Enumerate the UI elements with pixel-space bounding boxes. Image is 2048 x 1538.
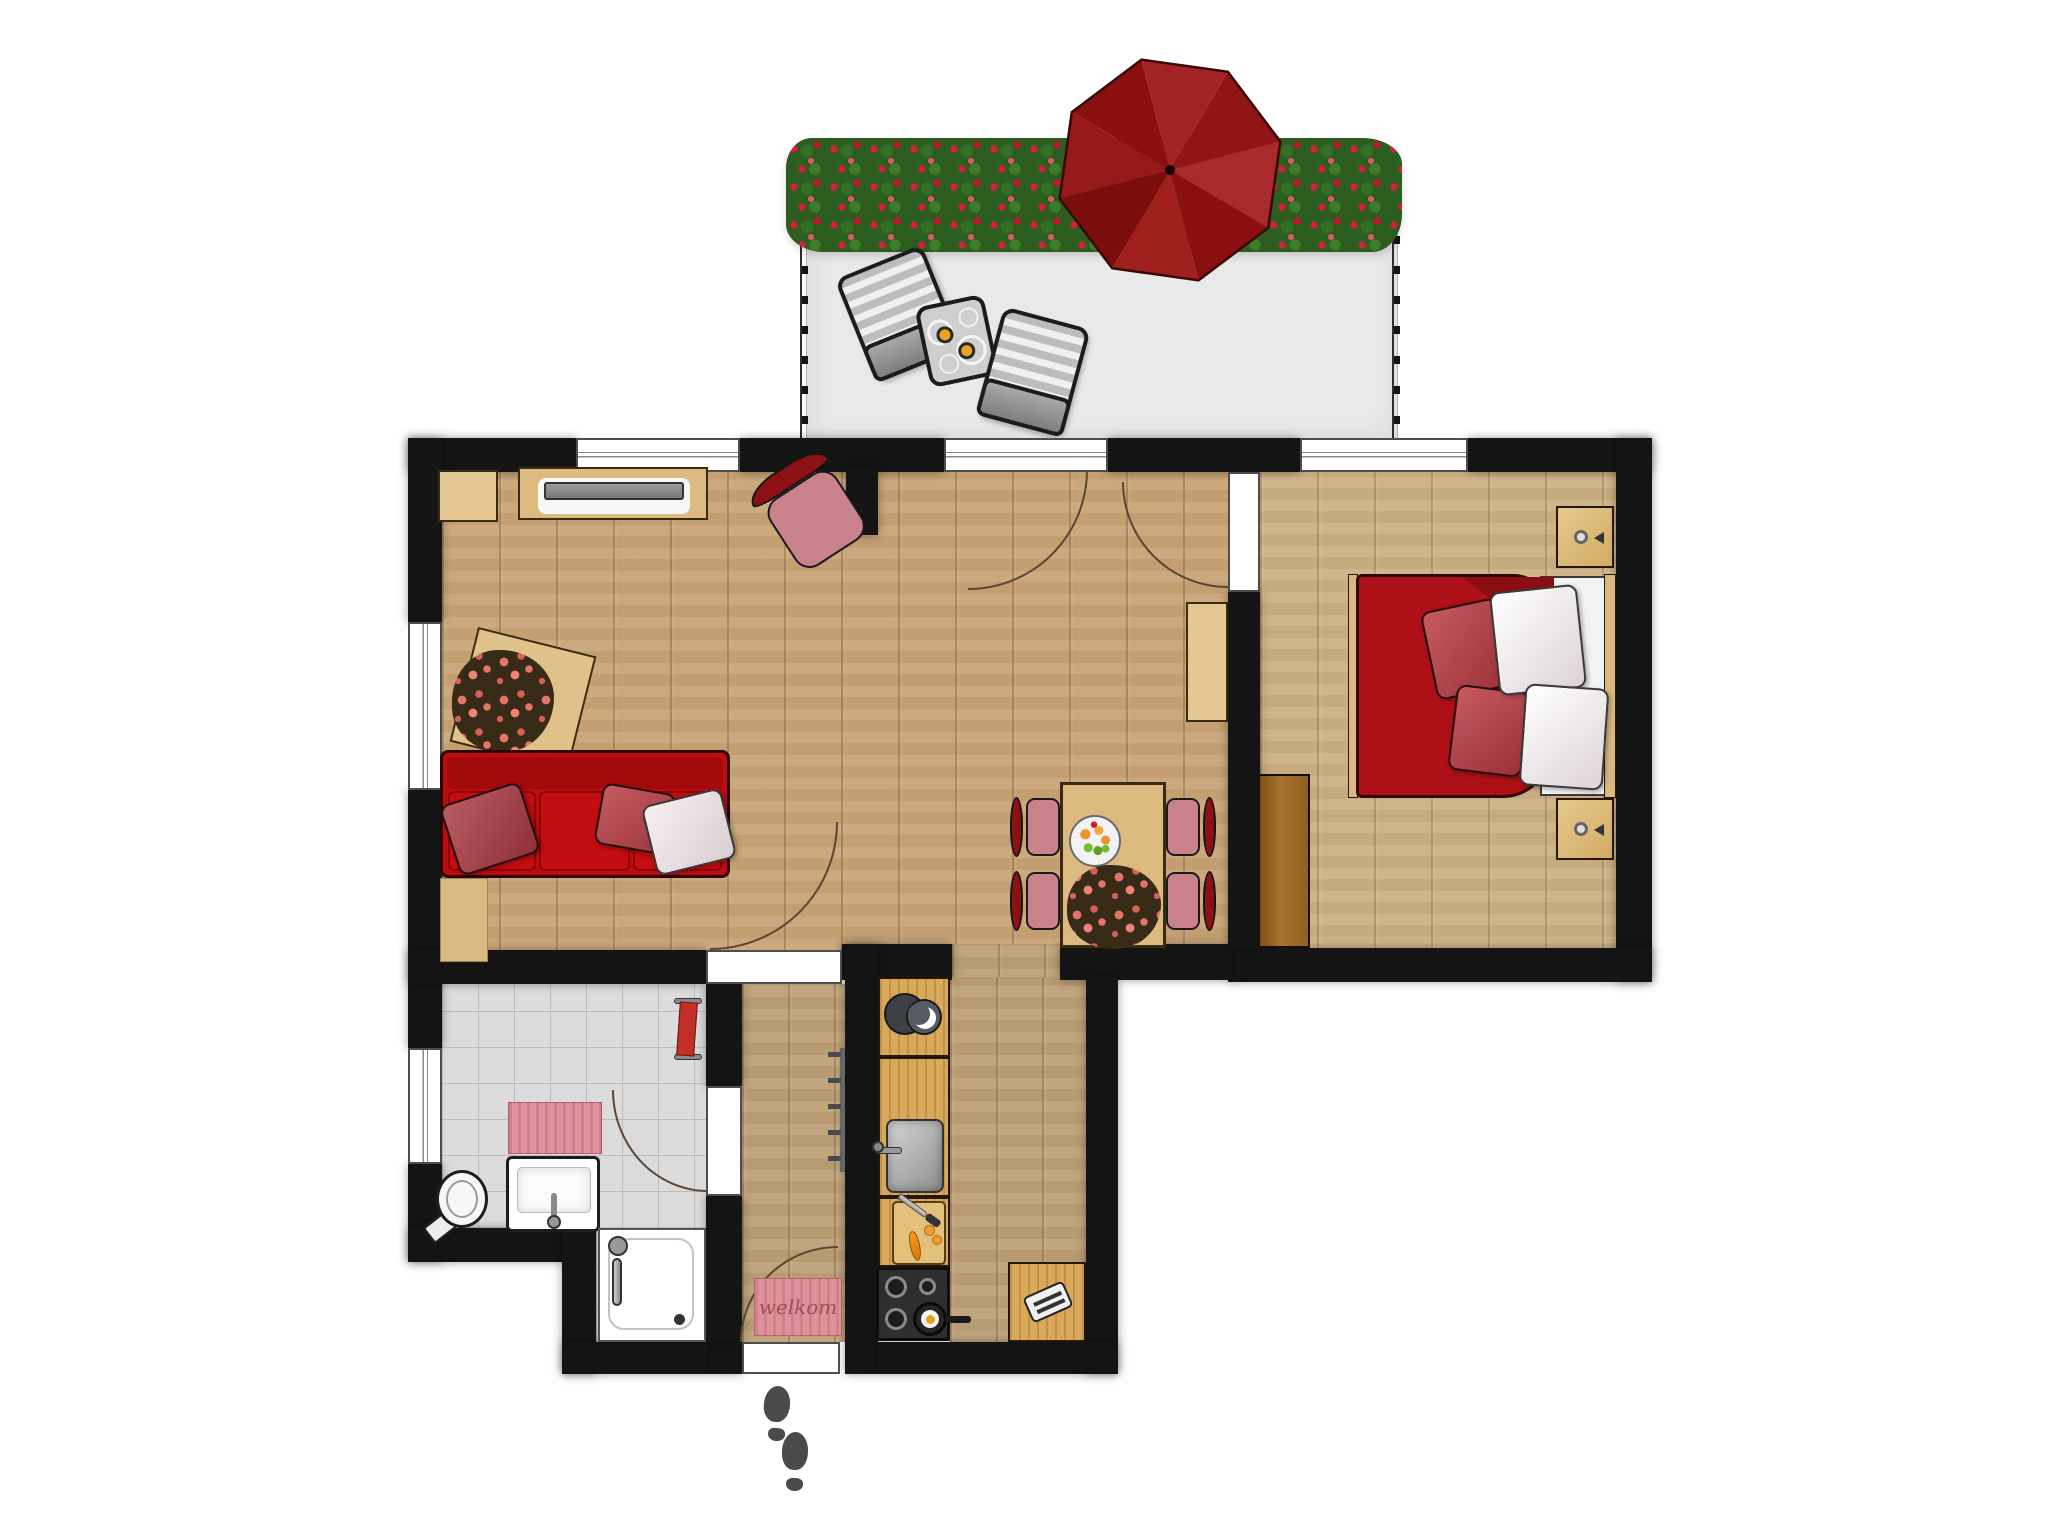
- dining-chair: [1010, 795, 1064, 859]
- bed-pillow-white: [1489, 584, 1587, 697]
- toilet-bowl: [436, 1170, 488, 1228]
- tv-icon: [544, 482, 684, 500]
- faucet-knob-icon: [547, 1215, 561, 1229]
- drink-icon: [935, 325, 955, 345]
- wall: [706, 984, 742, 1086]
- corner-cabinet: [438, 470, 498, 522]
- chair-seat: [1166, 798, 1200, 856]
- kitchen-side-table: [1008, 1262, 1086, 1342]
- drain-icon: [674, 1314, 685, 1325]
- parasol-icon: [1052, 52, 1288, 288]
- knob-pointer-icon: [1594, 824, 1604, 836]
- shower-hose-icon: [612, 1258, 622, 1306]
- faucet-knob-icon: [872, 1141, 884, 1153]
- chair-back: [1203, 871, 1216, 931]
- wall: [706, 1342, 742, 1374]
- window: [1300, 438, 1468, 472]
- window: [408, 1048, 442, 1164]
- bed-pillow-red: [1447, 684, 1531, 778]
- wall: [878, 1342, 1118, 1374]
- dining-chair: [1162, 795, 1216, 859]
- bed-headboard: [1604, 574, 1616, 798]
- footprint-icon: [762, 1385, 792, 1424]
- flower-bouquet: [452, 650, 554, 752]
- towel: [676, 1001, 698, 1056]
- chair-seat: [1026, 872, 1060, 930]
- wardrobe: [1258, 774, 1310, 948]
- flower-bouquet: [1067, 865, 1161, 949]
- tv-sideboard: [518, 467, 708, 520]
- kitchen-entry-floor: [952, 944, 1060, 980]
- egg-yolk-icon: [926, 1315, 935, 1324]
- dining-table: [1060, 782, 1166, 948]
- chair-seat: [1166, 872, 1200, 930]
- door-bathroom: [706, 1086, 742, 1196]
- wall: [408, 790, 442, 1048]
- stove: [876, 1267, 950, 1341]
- dining-chair: [1010, 869, 1064, 933]
- toilet-seat: [446, 1180, 478, 1218]
- side-table: [440, 878, 488, 962]
- footprint-icon: [767, 1427, 785, 1442]
- chair-back: [1203, 797, 1216, 857]
- knob-icon: [1574, 822, 1588, 836]
- dining-cabinet: [1186, 602, 1228, 722]
- wall: [1086, 977, 1118, 1374]
- wall: [1616, 438, 1652, 982]
- kitchen-sink: [886, 1119, 944, 1193]
- kitchen-counter: [878, 977, 950, 1057]
- welcome-mat: welkom: [754, 1278, 842, 1336]
- bathroom-sink: [506, 1156, 600, 1232]
- bath-mat: [508, 1102, 602, 1154]
- fruit-bowl-icon: [1069, 815, 1121, 867]
- welcome-mat-label: welkom: [759, 1295, 837, 1319]
- balcony-door: [944, 438, 1108, 472]
- chair-seat: [1026, 798, 1060, 856]
- kitchen-counter: [878, 1057, 950, 1197]
- shower-tray: [598, 1228, 706, 1342]
- balcony-railing-right: [1392, 214, 1400, 442]
- wall: [1228, 592, 1260, 948]
- kitchen-counter: [878, 1197, 950, 1267]
- nightstand: [1556, 798, 1614, 860]
- chair-back: [1010, 871, 1023, 931]
- burner-icon: [919, 1278, 936, 1295]
- bed-pillow-white: [1519, 683, 1610, 791]
- door-bedroom: [1228, 472, 1260, 592]
- dining-chair: [1162, 869, 1216, 933]
- wall: [1060, 944, 1232, 980]
- nightstand: [1556, 506, 1614, 568]
- window: [408, 622, 442, 790]
- drink-icon: [957, 341, 977, 361]
- footprint-icon: [786, 1478, 804, 1492]
- wall: [562, 1342, 706, 1374]
- wall: [706, 1196, 742, 1342]
- wall: [1228, 948, 1652, 982]
- coat-hooks-icon: [828, 1052, 841, 1170]
- shower-head-icon: [608, 1236, 628, 1256]
- wall: [1108, 438, 1300, 472]
- coffee-cup-shade: [908, 1003, 930, 1025]
- burner-icon: [885, 1276, 907, 1298]
- sofa-backrest: [447, 757, 723, 789]
- knob-icon: [1574, 530, 1588, 544]
- wall: [845, 944, 878, 1374]
- footprint-icon: [781, 1431, 809, 1470]
- tomato-icon: [924, 1225, 935, 1236]
- door-living-hall: [706, 950, 842, 984]
- tomato-icon: [932, 1235, 942, 1245]
- pan-handle-icon: [945, 1316, 971, 1323]
- door-entrance: [742, 1342, 840, 1374]
- knob-pointer-icon: [1594, 532, 1604, 544]
- floor-plan: welkom: [0, 0, 2048, 1538]
- toaster-icon: [1022, 1280, 1074, 1323]
- burner-icon: [885, 1308, 907, 1330]
- chair-back: [1010, 797, 1023, 857]
- wall: [408, 438, 442, 622]
